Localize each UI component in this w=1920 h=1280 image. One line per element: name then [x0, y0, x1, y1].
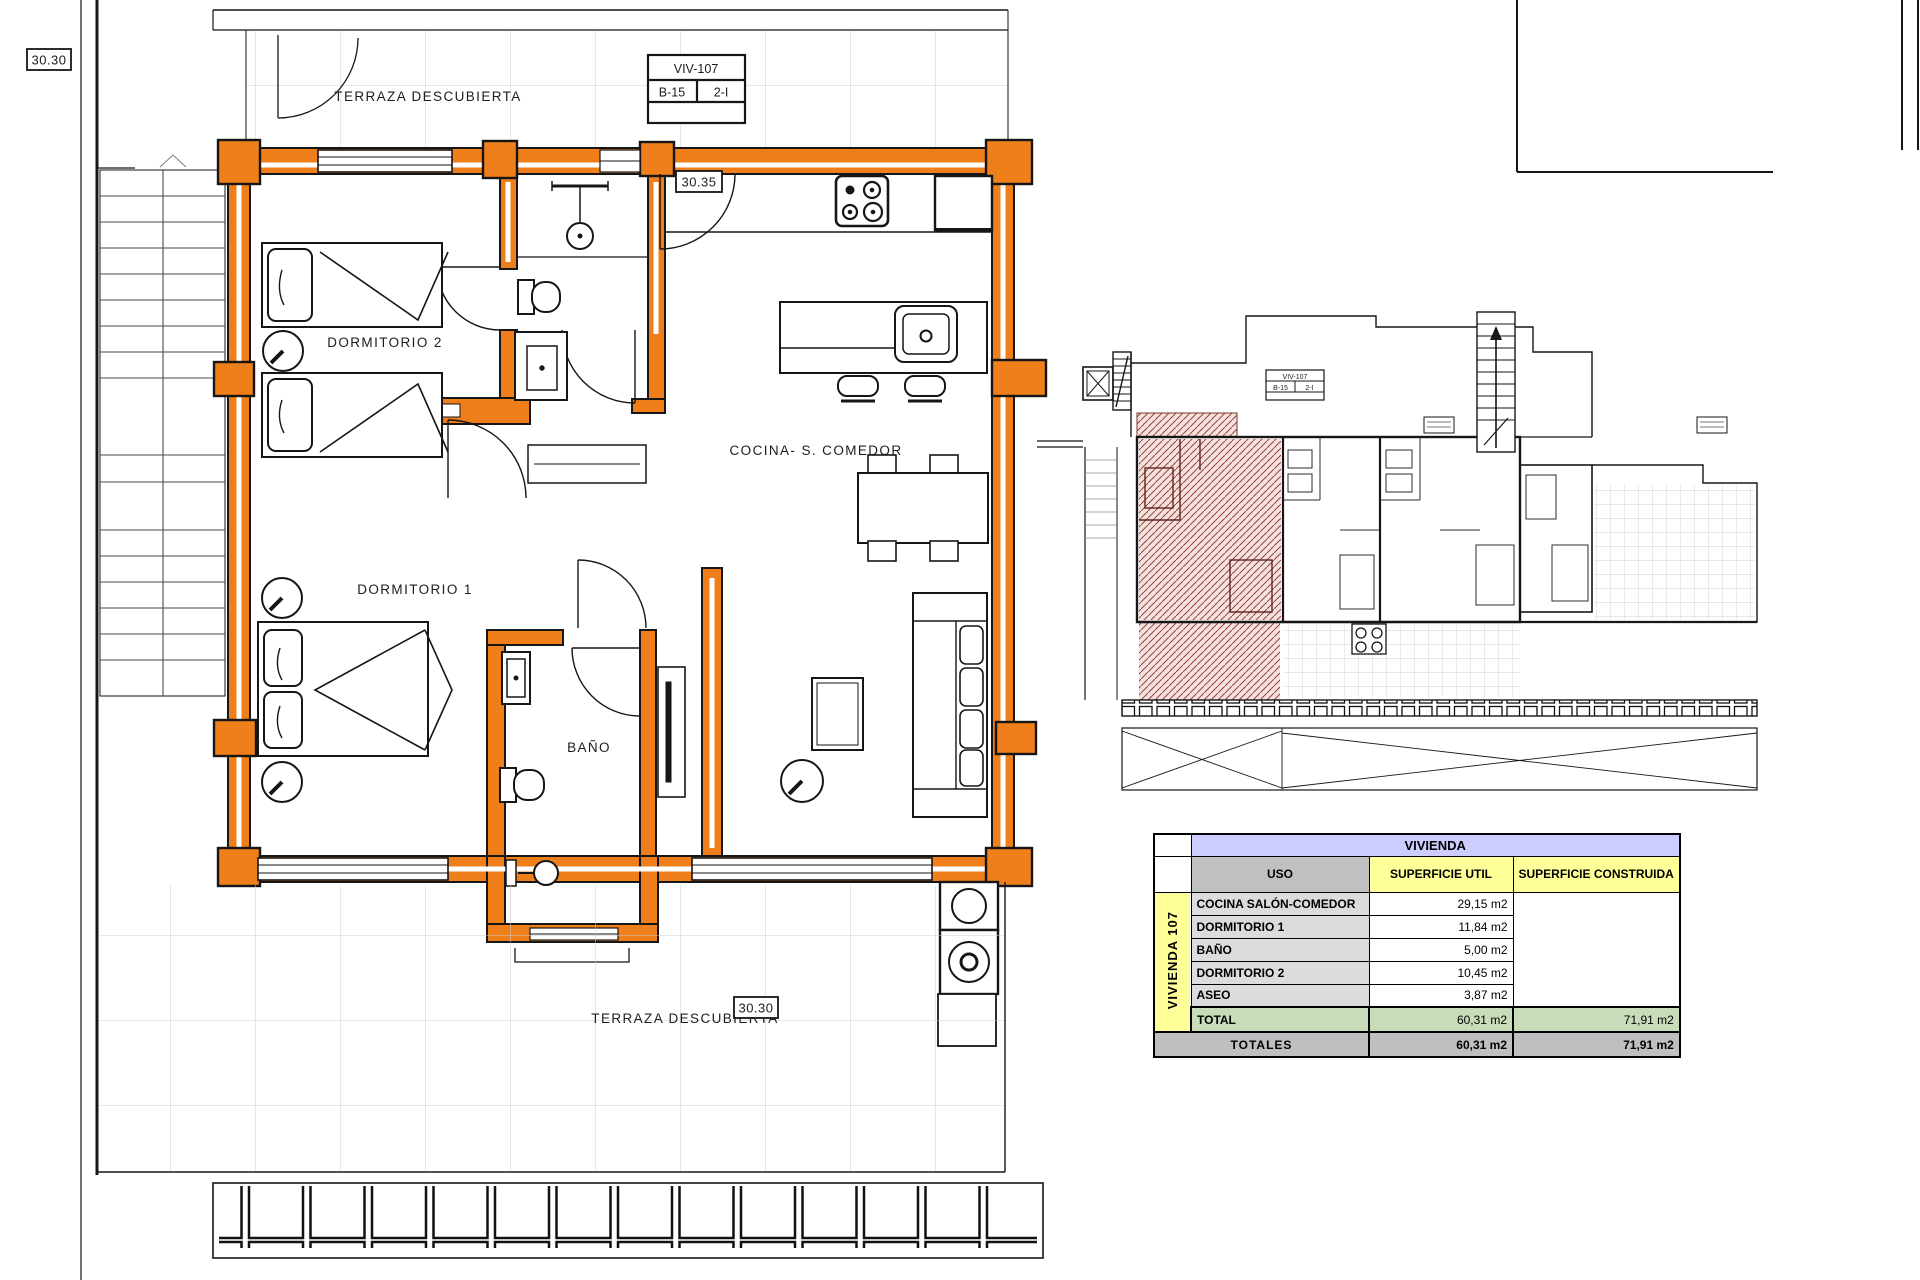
table-totales-label: TOTALES: [1154, 1032, 1369, 1057]
table-col-util: SUPERFICIE UTIL: [1369, 856, 1513, 892]
hall-door: [578, 560, 646, 628]
bano-door: [572, 648, 640, 716]
overview-left-terrace: [1085, 447, 1117, 700]
table-cell-uso: COCINA SALÓN-COMEDOR: [1191, 892, 1369, 915]
table-cell-construida-empty: [1513, 892, 1680, 1007]
sofa: [913, 593, 987, 817]
table-cell-util: 29,15 m2: [1369, 892, 1513, 915]
overview-laundry: [1352, 624, 1386, 654]
furniture-dormitorio2: [262, 243, 448, 457]
ref-box-top-left: 30.30: [27, 49, 71, 70]
table-cell-util: 11,84 m2: [1369, 915, 1513, 938]
overview-hatch-unit: [1139, 439, 1281, 620]
ref-box-mid: 30.35: [676, 171, 722, 192]
table-cell-uso: ASEO: [1191, 984, 1369, 1007]
terrace-bottom: [97, 882, 1005, 1172]
ref-mid-text: 30.35: [681, 175, 716, 190]
dining-set: [858, 455, 988, 561]
table-ghost-cell: [1154, 834, 1191, 856]
bano-fixtures: [500, 652, 544, 802]
dormitorio1-door: [448, 420, 526, 498]
exterior-stair-left: [100, 155, 225, 696]
table-group-label: VIVIENDA 107: [1154, 892, 1191, 1032]
window-bottom-right: [692, 858, 932, 880]
table-totales-row: TOTALES 60,31 m2 71,91 m2: [1154, 1032, 1680, 1057]
table-cell-uso: DORMITORIO 1: [1191, 915, 1369, 938]
window-bottom-left: [258, 858, 448, 880]
overview-unit2-interior: [1283, 437, 1380, 609]
overview-elevator: [1083, 367, 1113, 400]
furniture-dormitorio1: [258, 578, 452, 802]
table-cell-util: 5,00 m2: [1369, 938, 1513, 961]
overview-unit3-interior: [1380, 437, 1588, 605]
surface-area-table: VIVIENDA USO SUPERFICIE UTIL SUPERFICIE …: [1153, 833, 1681, 1058]
tv-unit: [658, 667, 685, 797]
overview-tb-block: B-15: [1273, 385, 1288, 392]
label-cocina: COCINA- S. COMEDOR: [730, 443, 903, 458]
overview-roof-lines: [1122, 728, 1757, 790]
table-row: VIVIENDA 107 COCINA SALÓN-COMEDOR 29,15 …: [1154, 892, 1680, 915]
table-cell-uso: DORMITORIO 2: [1191, 961, 1369, 984]
label-dormitorio1: DORMITORIO 1: [357, 582, 473, 597]
aseo-door: [562, 330, 635, 403]
window-top: [318, 150, 452, 172]
overview-hatch-entry: [1137, 413, 1237, 437]
table-cell-uso: BAÑO: [1191, 938, 1369, 961]
ref-bottom-text: 30.30: [738, 1001, 773, 1016]
floorplan-sheet: TERRAZA DESCUBIERTA DORMITORIO 2 DORMITO…: [0, 0, 1920, 1280]
terrace-top: [213, 10, 1008, 148]
label-dormitorio2: DORMITORIO 2: [327, 335, 443, 350]
dormitorio2-door: [437, 267, 500, 330]
plan-drawing: TERRAZA DESCUBIERTA DORMITORIO 2 DORMITO…: [0, 0, 1920, 1280]
title-block-floor: 2-I: [714, 86, 729, 100]
overview-plan: VIV-107 B-15 2-I: [1037, 312, 1757, 790]
kitchen-fixtures: [665, 176, 992, 401]
label-terraza-top: TERRAZA DESCUBIERTA: [334, 89, 521, 104]
overview-tb-unit: VIV-107: [1283, 374, 1308, 381]
aseo-fixtures: [515, 181, 608, 400]
entrance-opening: [600, 150, 640, 172]
title-block: VIV-107 B-15 2-I: [648, 55, 745, 123]
bar-stools: [838, 376, 945, 401]
overview-tb-floor: 2-I: [1305, 385, 1313, 392]
table-total-row: TOTAL 60,31 m2 71,91 m2: [1154, 1007, 1680, 1032]
table-ghost-cell: [1154, 856, 1191, 892]
table-total-construida: 71,91 m2: [1513, 1007, 1680, 1032]
overview-balustrade: [1122, 700, 1757, 716]
overview-stair-center: [1477, 312, 1515, 452]
floor-lamp: [781, 760, 823, 802]
table-cell-util: 3,87 m2: [1369, 984, 1513, 1007]
coffee-table-inner: [817, 683, 858, 745]
overview-hatch-terrace: [1139, 622, 1280, 700]
table-title: VIVIENDA: [1191, 834, 1680, 856]
corner-counter: [935, 176, 992, 230]
title-block-unit: VIV-107: [674, 62, 719, 76]
ref-top-left-text: 30.30: [31, 53, 66, 68]
terrace-bottom-paving: [99, 885, 1005, 1172]
stove: [836, 176, 888, 226]
table-totales-util: 60,31 m2: [1369, 1032, 1513, 1057]
ref-box-bottom: 30.30: [734, 997, 778, 1018]
overview-stair-left: [1113, 352, 1131, 410]
balustrade-bottom: [213, 1183, 1043, 1258]
table-total-util: 60,31 m2: [1369, 1007, 1513, 1032]
title-block-block: B-15: [659, 86, 685, 100]
overview-title-block: VIV-107 B-15 2-I: [1266, 370, 1324, 400]
table-total-label: TOTAL: [1191, 1007, 1369, 1032]
table-col-uso: USO: [1191, 856, 1369, 892]
label-bano: BAÑO: [567, 740, 611, 755]
table-col-construida: SUPERFICIE CONSTRUIDA: [1513, 856, 1680, 892]
overview-mini-tags: [1424, 417, 1727, 433]
table-totales-construida: 71,91 m2: [1513, 1032, 1680, 1057]
kitchen-island: [780, 302, 987, 373]
table-cell-util: 10,45 m2: [1369, 961, 1513, 984]
overview-left-wall: [1037, 441, 1083, 447]
